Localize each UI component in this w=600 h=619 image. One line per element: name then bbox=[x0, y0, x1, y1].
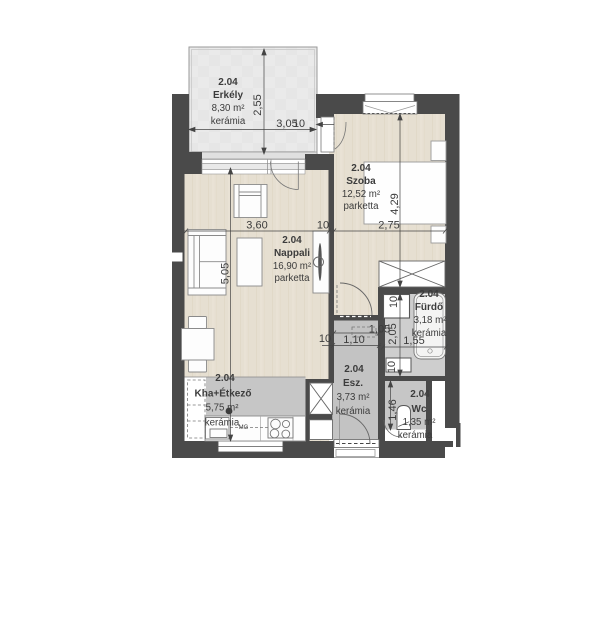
svg-text:kerámia: kerámia bbox=[336, 406, 371, 417]
svg-text:5,05: 5,05 bbox=[220, 263, 232, 284]
svg-text:2,75: 2,75 bbox=[378, 220, 399, 232]
svg-text:5,75 m²: 5,75 m² bbox=[206, 403, 240, 414]
svg-text:10: 10 bbox=[293, 118, 305, 130]
svg-text:1,10: 1,10 bbox=[343, 334, 364, 346]
svg-text:10: 10 bbox=[319, 333, 331, 345]
svg-text:Szoba: Szoba bbox=[346, 176, 376, 187]
svg-text:3,18 m²: 3,18 m² bbox=[414, 315, 448, 326]
svg-text:parketta: parketta bbox=[343, 201, 379, 212]
svg-text:2.04: 2.04 bbox=[282, 235, 302, 246]
svg-text:2.04: 2.04 bbox=[419, 289, 439, 300]
svg-text:Wc: Wc bbox=[412, 404, 427, 415]
svg-text:2.04: 2.04 bbox=[351, 163, 371, 174]
svg-text:1,46: 1,46 bbox=[387, 399, 399, 420]
svg-text:kerámia: kerámia bbox=[398, 430, 433, 441]
svg-text:10: 10 bbox=[388, 296, 400, 308]
svg-text:Fürdő: Fürdő bbox=[415, 302, 443, 313]
svg-text:12,52 m²: 12,52 m² bbox=[342, 189, 381, 200]
svg-text:3,60: 3,60 bbox=[246, 220, 267, 232]
svg-text:2,55: 2,55 bbox=[252, 94, 264, 115]
svg-text:kerámia: kerámia bbox=[205, 418, 240, 429]
svg-text:8,30 m²: 8,30 m² bbox=[212, 103, 246, 114]
svg-text:3,73 m²: 3,73 m² bbox=[337, 392, 371, 403]
svg-text:2,05: 2,05 bbox=[387, 323, 399, 344]
svg-text:parketta: parketta bbox=[274, 273, 310, 284]
svg-text:kerámia: kerámia bbox=[211, 116, 246, 127]
svg-text:1,35 m²: 1,35 m² bbox=[403, 417, 437, 428]
svg-text:16,90 m²: 16,90 m² bbox=[273, 261, 312, 272]
svg-text:MG: MG bbox=[239, 425, 249, 431]
svg-text:10: 10 bbox=[317, 220, 329, 232]
svg-text:Nappali: Nappali bbox=[274, 248, 310, 259]
svg-text:4,29: 4,29 bbox=[389, 193, 401, 214]
svg-text:1,55: 1,55 bbox=[403, 335, 424, 347]
svg-text:2.04: 2.04 bbox=[410, 389, 430, 400]
svg-text:Erkély: Erkély bbox=[213, 90, 243, 101]
svg-text:10: 10 bbox=[386, 361, 398, 373]
svg-text:2.04: 2.04 bbox=[215, 373, 235, 384]
svg-text:2.04: 2.04 bbox=[218, 77, 238, 88]
svg-text:2.04: 2.04 bbox=[344, 364, 364, 375]
svg-text:Kha+Étkező: Kha+Étkező bbox=[195, 387, 252, 400]
svg-text:Esz.: Esz. bbox=[343, 378, 363, 389]
